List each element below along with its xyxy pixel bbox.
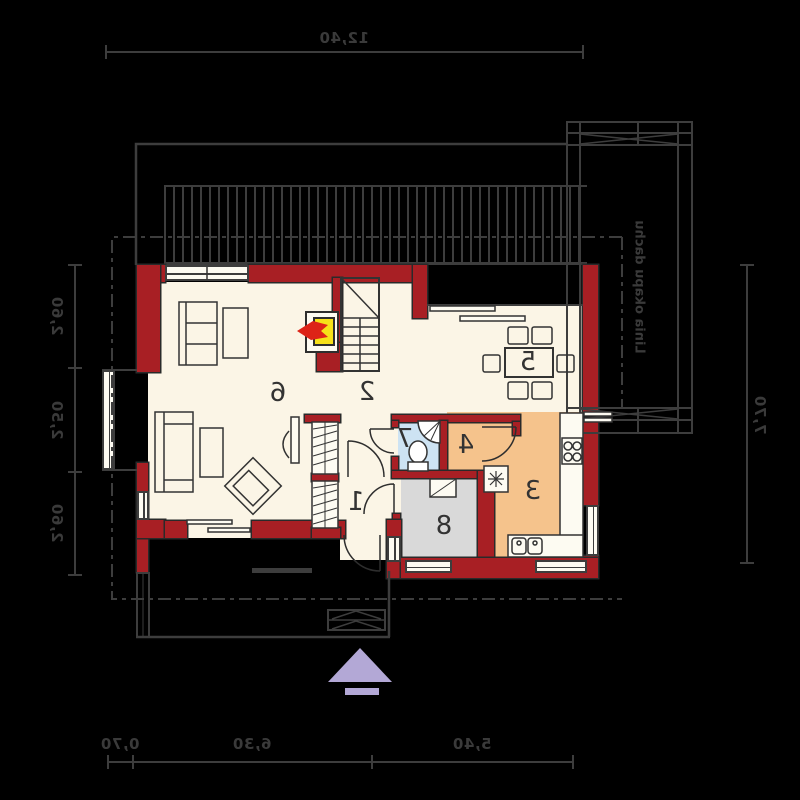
dim-top: 12,40 <box>319 29 369 47</box>
entrance-door <box>344 535 380 571</box>
tv-icon <box>283 417 299 463</box>
fridge-icon <box>484 466 508 492</box>
dim-bottom-2: 6,30 <box>232 735 271 753</box>
pantry-door <box>482 427 516 461</box>
room-label-bathroom: 7 <box>397 424 414 454</box>
dim-bottom-1: 0,70 <box>100 735 139 753</box>
fireplace-icon <box>297 312 338 352</box>
corner-basin-icon <box>418 421 440 443</box>
room-label-hall: 1 <box>348 487 365 517</box>
shelf-unit <box>179 302 248 365</box>
dim-bottom-3: 5,40 <box>452 735 491 753</box>
hall-door <box>348 441 384 477</box>
dim-left-1: 2,60 <box>48 296 66 335</box>
room-label-dining: 5 <box>520 347 537 377</box>
furniture <box>155 267 612 571</box>
snowflake-icon <box>488 471 504 487</box>
room-label-kitchen: 3 <box>525 476 542 506</box>
bathroom-door <box>370 429 394 453</box>
dim-left-2: 2,50 <box>48 400 66 439</box>
armchair <box>225 458 282 515</box>
floor-plan-canvas: 12,40 0,70 6,30 5,40 2,60 2,50 2,60 7,70… <box>0 0 800 800</box>
stairs <box>341 278 379 371</box>
dim-left-3: 2,60 <box>48 503 66 542</box>
dining-set <box>430 306 574 399</box>
shoe-cabinet <box>430 479 456 497</box>
vestibule-door <box>364 484 394 514</box>
room-label-living: 6 <box>270 378 287 408</box>
room-label-vestibule: 8 <box>436 511 453 541</box>
room-label-pantry: 4 <box>458 430 475 460</box>
terrace <box>102 305 583 637</box>
entrance-arrow-base <box>345 688 379 695</box>
roof-outline <box>136 144 567 265</box>
entrance-arrow-icon <box>328 648 392 682</box>
eaves-line-label: Linia okapu dachu <box>632 220 647 353</box>
plan-linework <box>0 0 800 800</box>
side-terrace-structure <box>567 122 692 433</box>
room-label-stairhall: 2 <box>359 377 376 407</box>
doors <box>344 427 516 571</box>
doormat <box>252 568 312 573</box>
sofa <box>155 412 281 514</box>
wardrobes <box>312 422 338 528</box>
coffee-table <box>200 428 223 477</box>
dim-right: 7,70 <box>751 395 769 434</box>
